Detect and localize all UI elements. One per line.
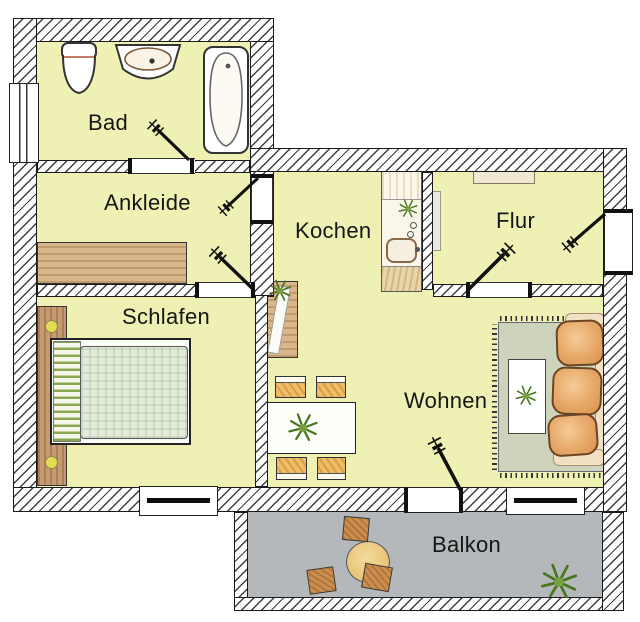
wall-kochen-flur: [422, 172, 433, 290]
bad-window: [9, 83, 39, 163]
ankleide-kochen-cap-bottom: [251, 220, 273, 224]
wall-balkon-right: [602, 512, 624, 611]
dining-chair-4: [317, 457, 346, 480]
sofa-cushion-2: [551, 366, 603, 416]
room-label-balkon: Balkon: [432, 532, 501, 558]
rug-fringe-bottom: [500, 473, 601, 478]
wall-schlafen-wohnen: [255, 284, 268, 487]
wall-top-right: [250, 148, 627, 172]
bad-door-cap-left: [128, 158, 132, 174]
floor-plan: Bad Ankleide Kochen Flur Schlafen Wohnen…: [0, 0, 640, 622]
stove-knob-2: [407, 231, 414, 238]
wall-balkon-bottom: [234, 597, 624, 611]
ankleide-schlafen-cap-left: [195, 282, 199, 298]
bathtub-icon: [202, 45, 250, 155]
schlafen-window: [139, 486, 218, 516]
ankleide-schlafen-door-opening: [195, 282, 255, 298]
ankleide-schlafen-cap-right: [251, 282, 255, 298]
ankleide-kochen-cap-top: [251, 174, 273, 178]
balcony-door: [404, 487, 463, 513]
dining-table: [267, 402, 356, 454]
kitchen-tap: [415, 247, 420, 252]
balcony-stool-1: [342, 516, 370, 542]
kitchen-counter: [381, 170, 422, 292]
dining-chair-1: [275, 376, 306, 398]
room-label-bad: Bad: [88, 110, 128, 136]
bedside-lamp-bottom: [45, 456, 58, 469]
kitchen-sink: [386, 238, 417, 263]
wall-right: [603, 148, 627, 512]
flur-wohnen-cap-left: [466, 282, 470, 298]
balcony-stool-3: [361, 563, 393, 592]
schlafen-window-glass: [147, 498, 210, 503]
room-label-wohnen: Wohnen: [404, 388, 487, 414]
sofa-cushion-3: [547, 412, 600, 457]
bad-door-opening: [128, 158, 195, 174]
balcony-stool-2: [306, 566, 336, 595]
wall-top-left: [13, 18, 274, 42]
bad-door-cap-right: [190, 158, 194, 174]
flur-wohnen-cap-right: [528, 282, 532, 298]
toilet-icon: [58, 41, 100, 97]
ankleide-kochen-door-opening: [251, 174, 273, 224]
wall-shelf: [473, 170, 535, 184]
coat-panel: [432, 191, 441, 251]
counter-bottom-section: [382, 266, 421, 291]
entrance-door-frame: [604, 209, 633, 275]
room-label-schlafen: Schlafen: [122, 304, 210, 330]
rug-fringe-left: [492, 324, 497, 470]
washbasin-icon: [114, 43, 182, 87]
room-label-flur: Flur: [496, 208, 535, 234]
room-label-kochen: Kochen: [295, 218, 371, 244]
bed-blanket: [80, 346, 188, 439]
bed-pillow: [53, 341, 81, 442]
dining-chair-3: [276, 457, 307, 480]
wohnen-window-glass: [514, 498, 577, 503]
bedside-lamp-top: [45, 320, 58, 333]
sofa-cushion-1: [555, 319, 605, 367]
dining-chair-2: [316, 376, 346, 398]
flur-wohnen-door-opening: [466, 282, 532, 298]
wardrobe: [37, 242, 187, 284]
room-label-ankleide: Ankleide: [104, 190, 191, 216]
counter-top-section: [382, 171, 421, 200]
stove-knob-1: [410, 222, 417, 229]
coffee-table: [508, 359, 546, 434]
balkon-floor: [245, 508, 607, 600]
wohnen-window: [506, 487, 585, 515]
